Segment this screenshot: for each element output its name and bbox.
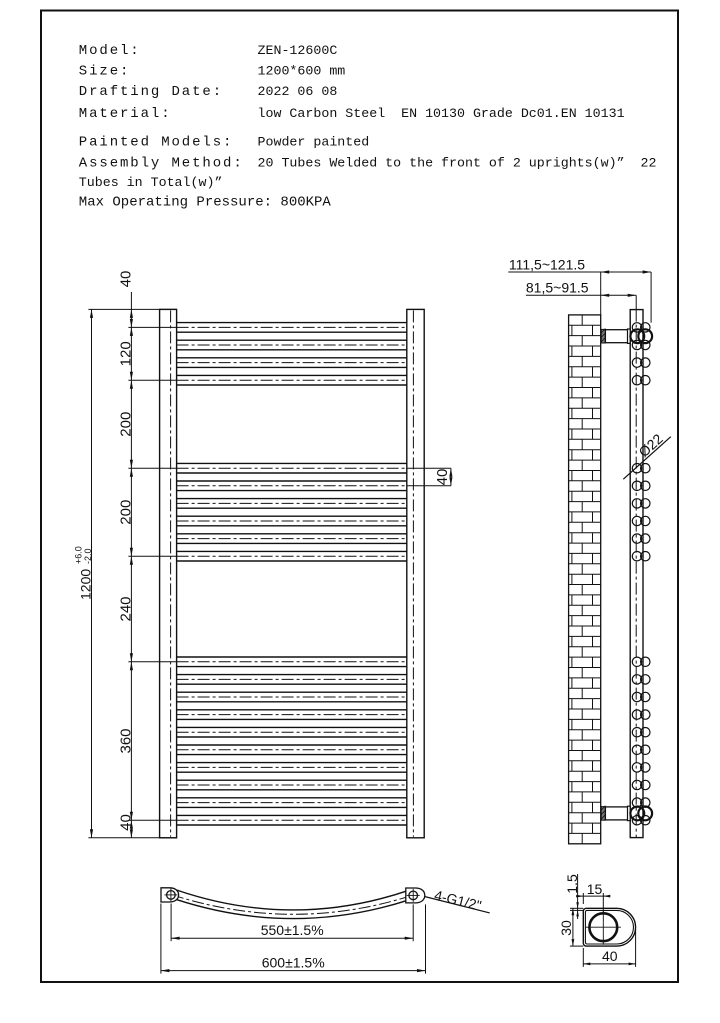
svg-text:200: 200 (118, 412, 135, 437)
svg-text:40: 40 (118, 814, 135, 831)
svg-text:1.5: 1.5 (564, 874, 580, 894)
svg-text:40: 40 (118, 271, 135, 288)
svg-text:low Carbon Steel EN 10130 Gra: low Carbon Steel EN 10130 Grade Dc01.EN … (258, 106, 625, 121)
svg-text:Powder painted: Powder painted (258, 134, 370, 149)
svg-text:40: 40 (434, 469, 451, 486)
svg-text:Model:: Model: (79, 43, 141, 59)
svg-text:ZEN-12600C: ZEN-12600C (258, 43, 338, 58)
svg-text:240: 240 (118, 596, 135, 621)
svg-text:120: 120 (118, 341, 135, 366)
svg-text:360: 360 (118, 728, 135, 753)
svg-text:-2.0: -2.0 (83, 548, 93, 564)
svg-text:+6.0: +6.0 (74, 546, 84, 564)
svg-text:600±1.5%: 600±1.5% (262, 955, 325, 971)
svg-text:2022 06 08: 2022 06 08 (258, 84, 338, 99)
svg-text:15: 15 (587, 881, 603, 897)
svg-text:20 Tubes Welded to the front o: 20 Tubes Welded to the front of 2 uprigh… (258, 155, 657, 170)
svg-text:200: 200 (118, 500, 135, 525)
svg-text:1200*600 mm: 1200*600 mm (258, 64, 346, 79)
svg-text:Max Operating Pressure: 800KPA: Max Operating Pressure: 800KPA (79, 194, 332, 210)
svg-text:Drafting Date:: Drafting Date: (79, 84, 223, 100)
svg-text:4-G1/2": 4-G1/2" (433, 887, 483, 914)
svg-text:Assembly Method:: Assembly Method: (79, 155, 244, 171)
svg-text:Material:: Material: (79, 106, 172, 122)
svg-text:Ø22: Ø22 (635, 430, 666, 460)
svg-text:1200: 1200 (78, 569, 94, 600)
svg-text:Painted Models:: Painted Models: (79, 134, 234, 150)
svg-text:550±1.5%: 550±1.5% (261, 922, 324, 938)
svg-text:111,5~121.5: 111,5~121.5 (509, 256, 585, 272)
svg-text:Tubes in Total(w)”: Tubes in Total(w)” (79, 175, 223, 190)
svg-text:30: 30 (558, 920, 574, 936)
svg-text:40: 40 (602, 948, 618, 964)
svg-text:Size:: Size: (79, 64, 131, 80)
svg-text:81,5~91.5: 81,5~91.5 (526, 280, 589, 296)
